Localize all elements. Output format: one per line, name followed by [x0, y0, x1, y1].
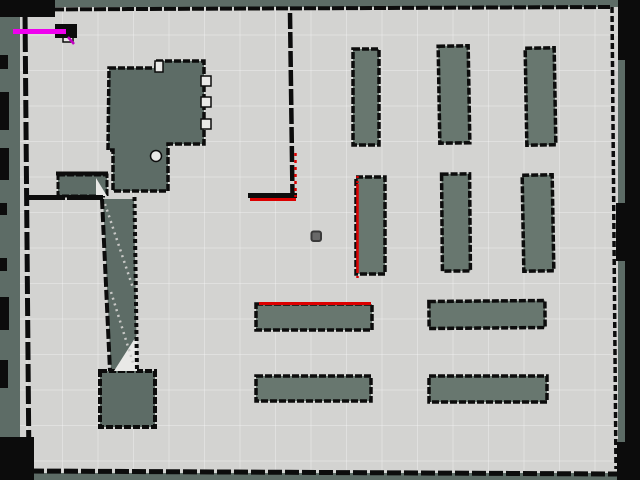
frame-left-3	[0, 148, 9, 180]
wall-bottom	[30, 471, 617, 474]
map-canvas[interactable]	[0, 0, 640, 480]
shelf-bottom-2	[429, 376, 547, 402]
shelf-bottom-1	[256, 376, 371, 401]
shelf-top-1	[353, 49, 379, 145]
frame-left-6	[0, 297, 9, 330]
structure-round-notch	[151, 151, 162, 162]
frame-bottom-right	[617, 442, 640, 480]
frame-bottom-left-corner	[0, 437, 34, 480]
structure-top-notch	[155, 61, 163, 72]
frame-right-mid	[616, 203, 628, 261]
frame-top-right	[618, 0, 640, 60]
layer-robot	[312, 232, 322, 242]
frame-top-left	[0, 0, 55, 17]
frame-left-2	[0, 92, 9, 130]
shelf-mid-2	[442, 174, 471, 271]
structure-door-notch-2	[201, 97, 211, 107]
frame-left-5	[0, 258, 7, 271]
frame-left-4	[0, 203, 7, 215]
shelf-mid-1	[356, 177, 385, 274]
map-viewport[interactable]	[0, 0, 640, 480]
wall-center-vertical	[290, 13, 293, 196]
robot-marker	[312, 232, 322, 242]
shelf-top-3	[525, 48, 556, 145]
dock-block	[100, 371, 155, 427]
frame-left-7	[0, 360, 8, 388]
structure-door-notch-1	[201, 76, 211, 86]
shelf-mid-3	[522, 175, 554, 272]
shelf-low-1	[256, 304, 372, 330]
structure-door-notch-3	[201, 119, 211, 129]
shelf-top-2	[438, 46, 470, 144]
frame-left-1	[0, 55, 8, 69]
shelf-low-2	[429, 300, 545, 328]
